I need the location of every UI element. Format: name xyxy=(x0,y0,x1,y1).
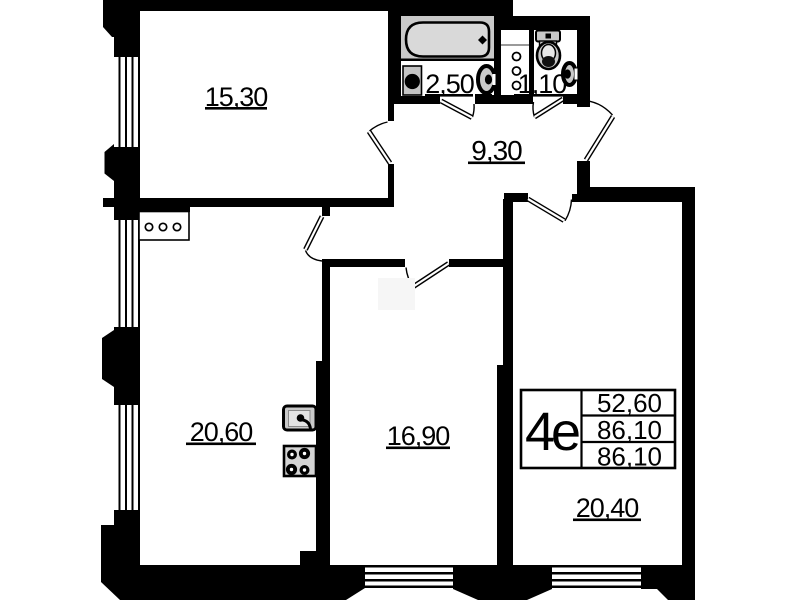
svg-text:9,30: 9,30 xyxy=(471,135,522,166)
svg-text:86,10: 86,10 xyxy=(597,415,662,445)
svg-text:4е: 4е xyxy=(525,402,579,462)
svg-text:52,60: 52,60 xyxy=(597,388,662,418)
svg-text:86,10: 86,10 xyxy=(597,442,662,472)
